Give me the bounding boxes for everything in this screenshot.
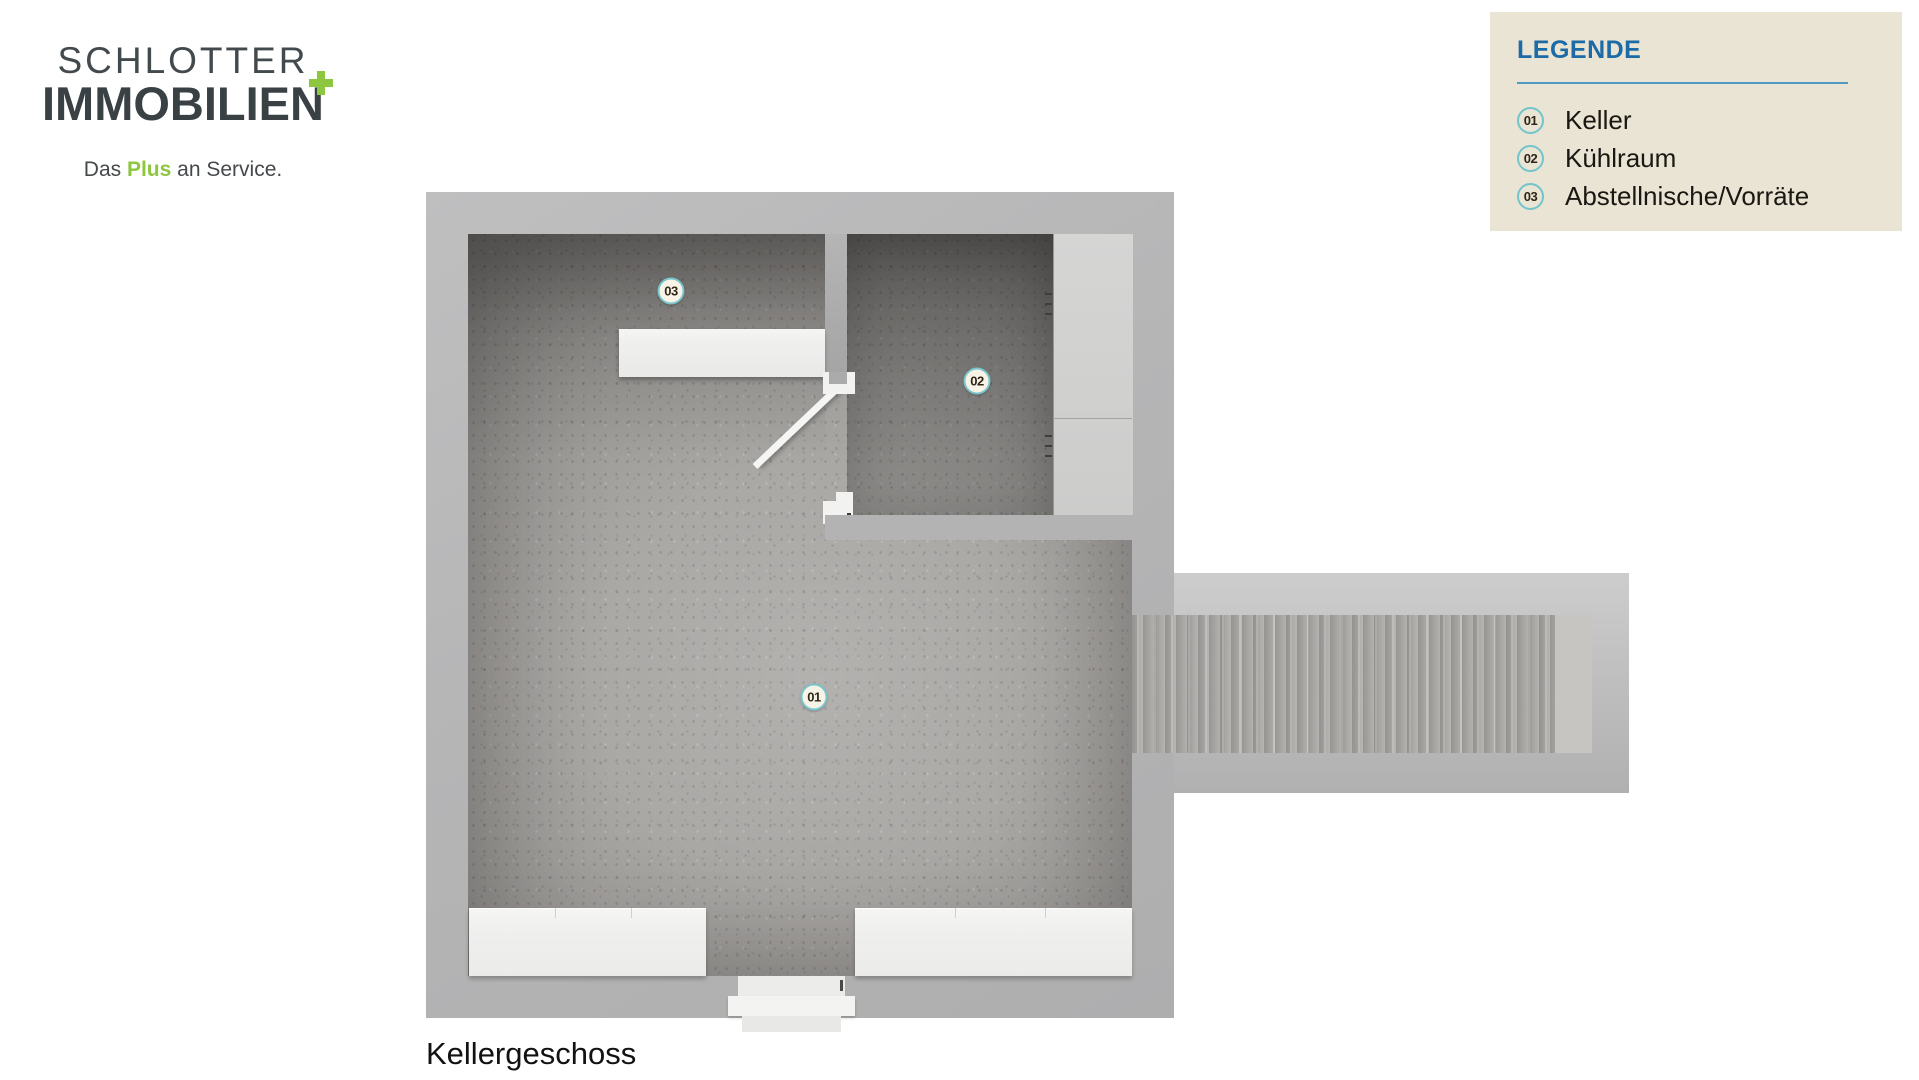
interior-wall-room-02-bottom	[825, 515, 1174, 540]
shelf-tick	[1045, 445, 1052, 447]
white-bench-left	[469, 908, 706, 976]
shelf-tick	[1045, 455, 1052, 457]
interior-wall-divider	[825, 234, 847, 372]
brand-name-line2: IMMOBILIEN	[28, 80, 338, 127]
bench-seam	[631, 908, 632, 918]
legend-item: 01 Keller	[1517, 101, 1902, 139]
staircase-treads	[1132, 615, 1555, 753]
entry-door-mark	[840, 980, 843, 991]
floor-zone-03-abstellnische	[468, 234, 825, 329]
brand-tagline: Das Plus an Service.	[28, 158, 338, 181]
shelving-divider-line	[1053, 418, 1132, 419]
white-bench-right	[855, 908, 1132, 976]
counter-room-03	[619, 329, 825, 377]
shelf-tick	[1045, 435, 1052, 437]
bench-seam	[955, 908, 956, 918]
legend-item-label: Kühlraum	[1565, 143, 1676, 174]
legend-item-number-badge: 01	[1517, 107, 1544, 134]
staircase-landing	[1555, 615, 1592, 753]
legend-divider	[1517, 82, 1848, 84]
shelf-tick	[1045, 313, 1052, 315]
shelf-tick	[1045, 303, 1052, 305]
door-frame-top-notch	[829, 372, 847, 384]
tagline-highlight: Plus	[127, 158, 171, 181]
shelf-tick	[1045, 293, 1052, 295]
floor-plan	[426, 192, 1629, 1018]
bench-seam	[1045, 908, 1046, 918]
legend-item-number-badge: 02	[1517, 145, 1544, 172]
legend-title: LEGENDE	[1517, 36, 1902, 65]
legend-item-label: Keller	[1565, 105, 1631, 136]
plus-icon	[309, 71, 333, 95]
entry-step	[742, 1016, 841, 1032]
shelving-room-02	[1053, 234, 1133, 517]
floor-room-02-kuehlraum	[847, 234, 1053, 515]
tagline-suffix: an Service.	[171, 158, 282, 181]
plan-caption: Kellergeschoss	[426, 1036, 636, 1072]
entry-step	[738, 976, 845, 996]
bench-seam	[555, 908, 556, 918]
legend-item: 02 Kühlraum	[1517, 139, 1902, 177]
tagline-prefix: Das	[84, 158, 127, 181]
brand-name-line1: SCHLOTTER	[28, 42, 338, 79]
page: SCHLOTTER IMMOBILIEN Das Plus an Service…	[0, 0, 1919, 1080]
entry-step	[728, 996, 855, 1016]
